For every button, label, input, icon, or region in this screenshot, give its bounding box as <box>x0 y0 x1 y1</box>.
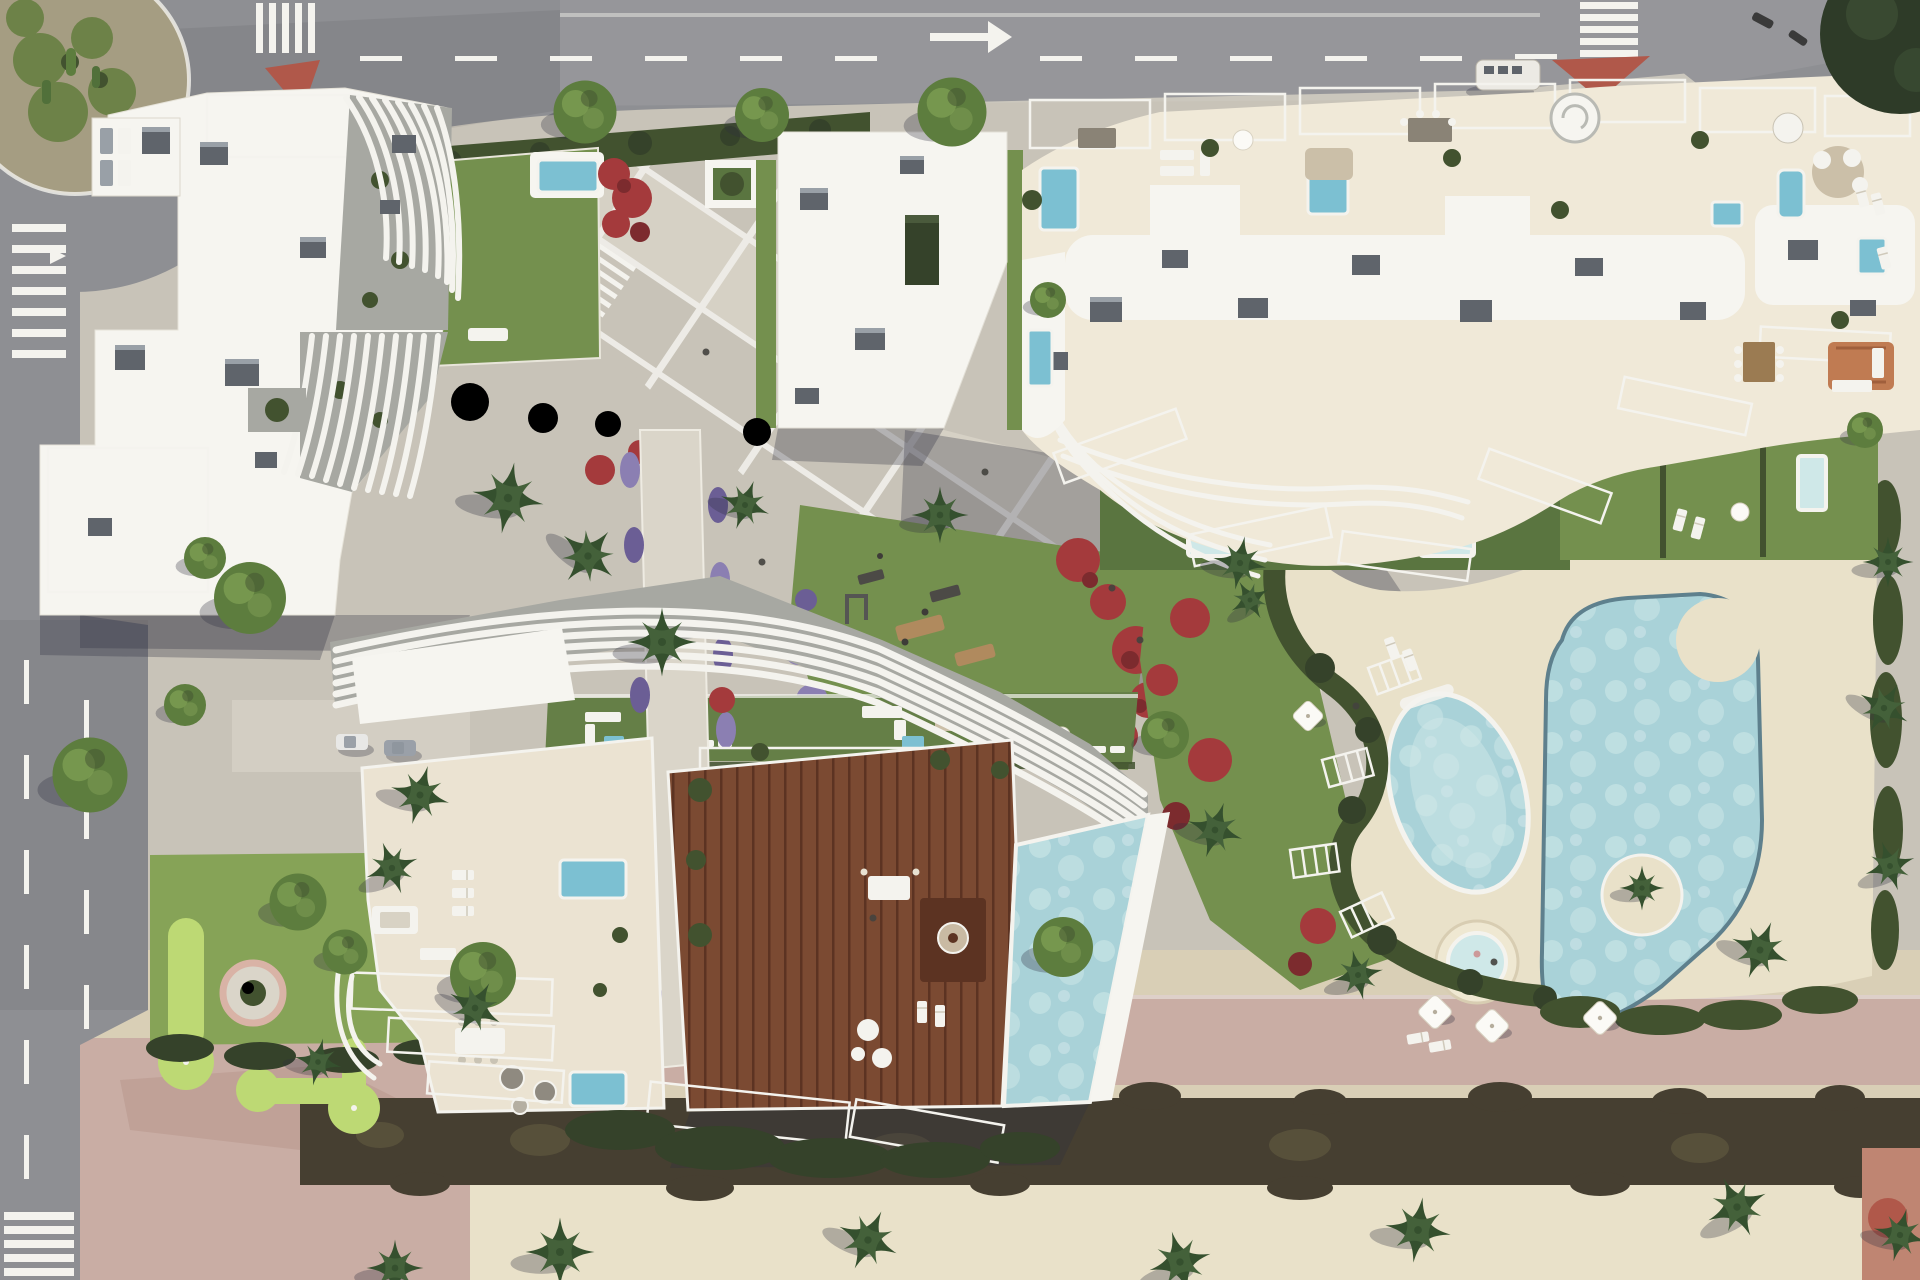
terrace-dining-table <box>455 1028 505 1054</box>
lawn-strip-b <box>1007 150 1023 430</box>
circular-planter <box>223 963 283 1023</box>
lawn-strip-a <box>756 160 776 428</box>
plunge-pool-nw <box>538 160 598 192</box>
left-road-shade <box>0 620 148 1010</box>
garden-bench <box>468 328 508 341</box>
pool-beach-cove <box>1676 598 1760 682</box>
aerial-render <box>0 0 1920 1280</box>
north-residential-building <box>1022 72 1920 581</box>
podium-green-shed-top <box>905 215 939 223</box>
egg-chair <box>534 1081 556 1103</box>
egg-chair <box>500 1066 524 1090</box>
roof-band-east <box>1755 205 1915 305</box>
rooftop-jacuzzi <box>1778 170 1804 218</box>
roof-band <box>1065 235 1745 320</box>
terrace-pool-b <box>570 1072 626 1106</box>
roof-protrusion <box>1445 196 1530 244</box>
podium-green-shed <box>905 215 939 285</box>
courtyard-planter <box>705 160 759 208</box>
deck-table <box>868 876 910 900</box>
terrace-pool-a <box>560 860 626 898</box>
aerial-render-canvas <box>0 0 1920 1280</box>
lane-line-solid <box>560 13 1540 17</box>
spiral-roof-element <box>1551 94 1599 142</box>
plunge-pool <box>1798 456 1826 510</box>
roof-protrusion <box>1150 185 1240 237</box>
west-building-shadow <box>40 615 335 660</box>
podium-shadow <box>772 428 944 466</box>
